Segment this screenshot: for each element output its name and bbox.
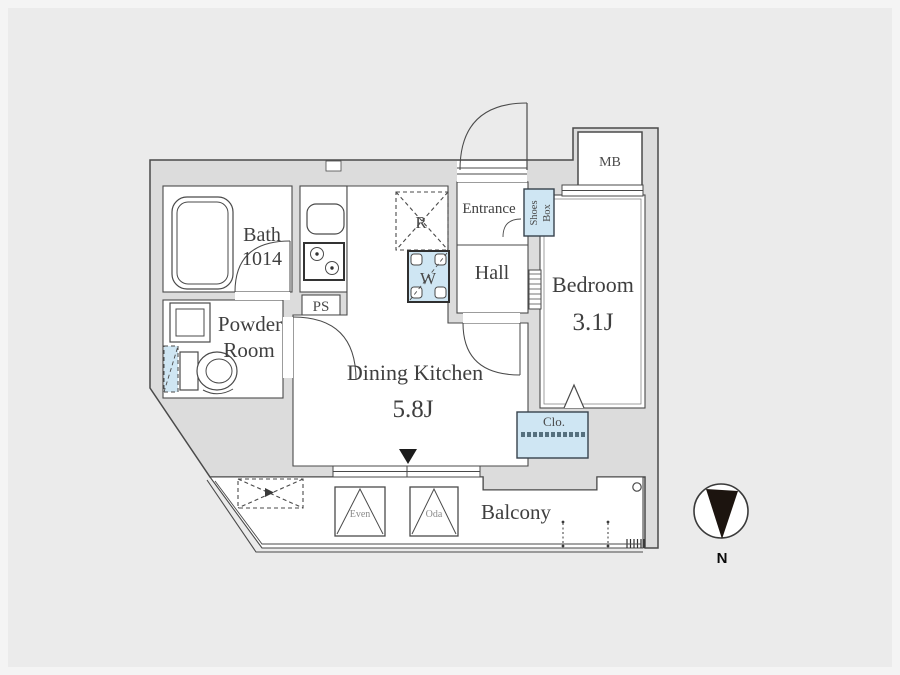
bedroom-sliding-door	[529, 270, 541, 309]
north-compass	[694, 484, 748, 539]
room-bedroom	[540, 195, 645, 408]
shoes-box-label2: Box	[542, 204, 553, 222]
bedroom-label: Bedroom	[552, 272, 634, 297]
bedroom-window	[562, 185, 643, 196]
pipe-space-label: PS	[313, 299, 330, 315]
balcony-drain	[633, 483, 641, 491]
balcony-unit-left-label: Even	[350, 509, 371, 520]
powder-room-label2: Room	[223, 338, 274, 362]
balcony-unit-right-label: Oda	[426, 509, 443, 520]
bedroom-size-label: 3.1J	[573, 309, 614, 336]
entrance-label: Entrance	[462, 201, 516, 217]
shoes-box-label: Shoes	[529, 200, 540, 225]
hall-label: Hall	[475, 262, 510, 284]
dining-kitchen-label: Dining Kitchen	[347, 360, 483, 385]
closet-label: Clo.	[543, 414, 565, 429]
bath-label: Bath	[243, 224, 281, 246]
dining-kitchen-size-label: 5.8J	[393, 396, 434, 423]
wall-notch	[326, 161, 341, 171]
entrance-door-opening	[457, 161, 527, 182]
floorplan-drawing: Bath 1014 Powder Room PS Dining Kitchen …	[0, 0, 900, 675]
washer-label: W	[420, 269, 437, 288]
meter-box-label: MB	[599, 155, 621, 170]
balcony-label: Balcony	[481, 500, 551, 524]
kitchen-stove	[304, 243, 344, 280]
north-label: N	[717, 550, 728, 567]
bathtub	[172, 197, 233, 289]
dk-balcony-window	[333, 466, 480, 477]
kitchen-sink	[307, 204, 344, 234]
refrigerator-label: R	[415, 213, 427, 232]
powder-room-label: Powder	[218, 312, 282, 336]
powder-basin	[170, 303, 210, 342]
bath-size-label: 1014	[242, 248, 282, 270]
floorplan-screenshot: Bath 1014 Powder Room PS Dining Kitchen …	[0, 0, 900, 675]
